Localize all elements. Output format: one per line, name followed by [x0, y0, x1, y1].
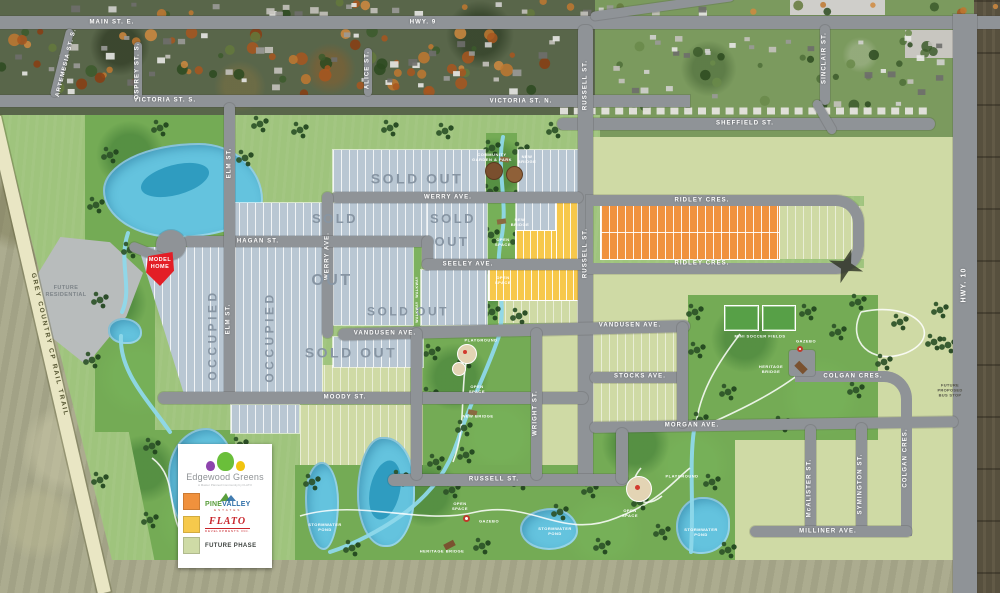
park-central-corridor [423, 333, 531, 480]
pond [108, 318, 142, 344]
road-ridley-loop [586, 195, 864, 274]
lot-block-sold [231, 405, 299, 433]
road-walkway [411, 328, 422, 480]
lot-block-sold [333, 203, 433, 236]
edgewood-greens-logo: Edgewood Greens A Master Planned Communi… [183, 447, 267, 487]
lot-block-out [333, 247, 413, 325]
future-phase-block [593, 137, 958, 196]
lot-block-flato [516, 231, 556, 259]
playground-icon [452, 362, 466, 376]
pinevalley-name-2: VALLEY [222, 501, 250, 508]
road-werry-v [322, 192, 333, 338]
future-phase-lots [489, 300, 578, 323]
legend-panel: Edgewood Greens A Master Planned Communi… [178, 444, 272, 568]
future-phase-block [542, 328, 578, 480]
garden-plot-icon [507, 167, 522, 182]
lot-block-sold [516, 203, 556, 231]
road-hagan [183, 236, 433, 247]
road-hwy10 [953, 14, 977, 593]
future-phase-block [864, 196, 958, 274]
road-wright [531, 328, 542, 480]
road-colgan-loop [795, 371, 912, 536]
road-sheffield [557, 118, 935, 130]
pinevalley-name-1: PINE [205, 501, 222, 508]
pinevalley-estates: ESTATES [214, 509, 241, 512]
park-playground-east [593, 428, 735, 480]
lot-block-sold [231, 203, 322, 236]
compass-icon [826, 246, 866, 286]
farmland-strip [974, 0, 1000, 593]
road-elm [224, 103, 235, 403]
future-phase-label: FUTURE PHASE [205, 543, 256, 549]
road-moody [158, 392, 588, 404]
gazebo-icon [463, 515, 470, 522]
road-werry-h [331, 192, 583, 203]
lot-block-sold [427, 203, 487, 259]
site-plan-map: MAIN ST. E. HWY. 9 VICTORIA ST. S. VICTO… [0, 0, 1000, 593]
legend-title: Edgewood Greens [183, 472, 267, 482]
lot-block-flato [556, 203, 578, 259]
road-sinclair [820, 25, 830, 105]
road-milliner [750, 526, 912, 537]
stormwater-pond [676, 497, 730, 554]
lot-block-out [421, 270, 487, 325]
legend-item-flato: FLATO DEVELOPMENTS INC. [183, 516, 267, 533]
future-phase-swatch [183, 537, 200, 554]
flato-swatch [183, 516, 200, 533]
lot-block-sold-out [518, 150, 578, 192]
road-stocks [590, 372, 685, 383]
road-seeley [422, 259, 587, 270]
road-russell-elbow [616, 428, 628, 484]
pinevalley-swatch [183, 493, 200, 510]
flato-sub: DEVELOPMENTS INC. [205, 528, 250, 533]
new-bridge-icon [500, 156, 510, 162]
road-east-connector [677, 322, 688, 428]
road-main-st-hwy9 [0, 16, 1000, 29]
lot-block-occupied [235, 247, 322, 395]
soccer-fields-icon [724, 305, 796, 331]
pinevalley-mountains-icon [218, 491, 238, 501]
garden-plot-icon [486, 163, 502, 179]
road-osprey [134, 42, 142, 100]
walkway-strip [413, 247, 421, 333]
legend-item-future-phase: FUTURE PHASE [183, 537, 267, 554]
lot-block-sold-out [333, 150, 485, 192]
playground-icon [457, 344, 477, 364]
flato-name: FLATO [209, 517, 246, 527]
lot-block-flato [489, 266, 578, 300]
legend-item-pinevalley: PINEVALLEY ESTATES [183, 491, 267, 512]
edgewood-trees-icon [183, 447, 267, 471]
stormwater-pond [520, 508, 578, 550]
legend-subtitle: A Master Planned Community by FLATO [183, 483, 267, 487]
playground-dot [463, 350, 467, 354]
lot-block-sold-out [333, 337, 423, 367]
parking-lot [790, 0, 885, 15]
road-russell-h [388, 474, 628, 486]
road-alice [364, 48, 372, 96]
gazebo-icon [797, 346, 803, 352]
playground-dot [635, 485, 640, 490]
